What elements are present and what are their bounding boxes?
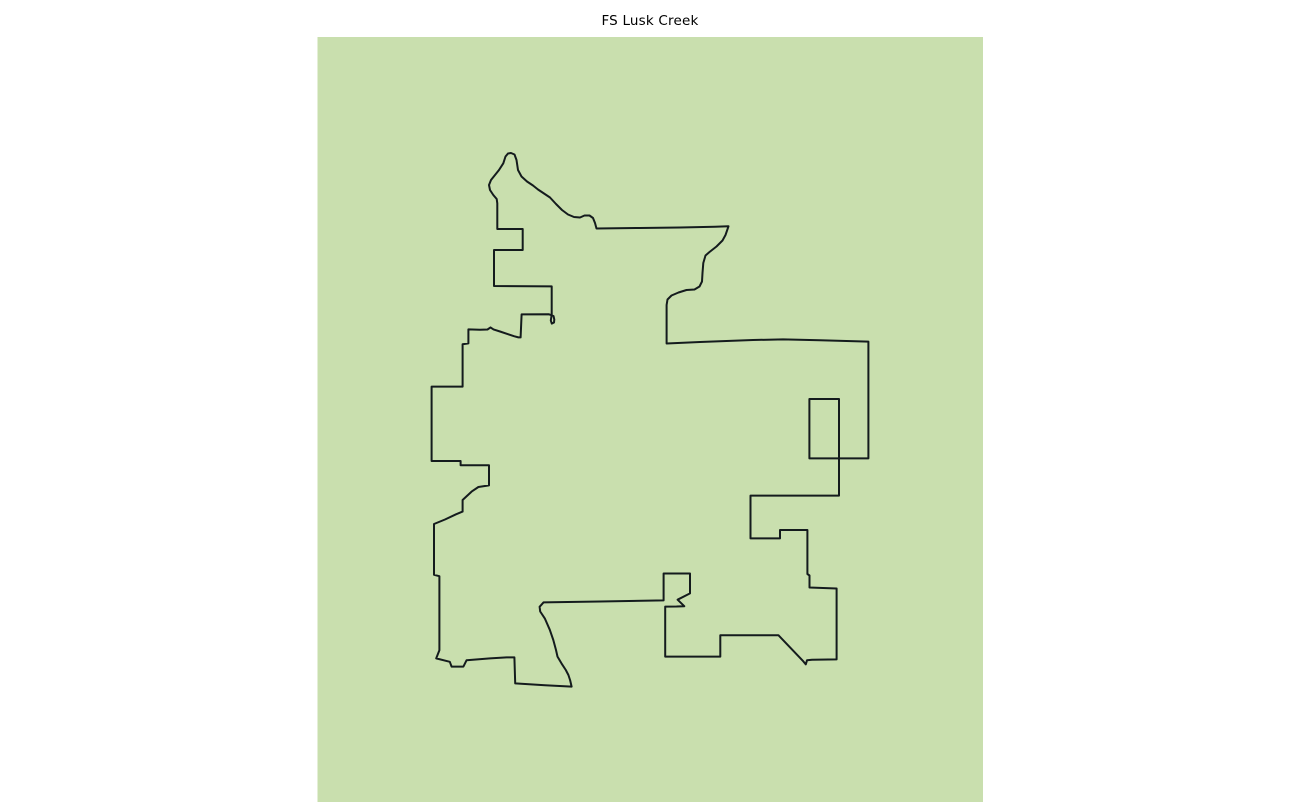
plot-title: FS Lusk Creek [317,13,983,29]
map-background [318,37,984,802]
map-svg [0,0,1300,802]
figure: FS Lusk Creek [0,0,1300,802]
